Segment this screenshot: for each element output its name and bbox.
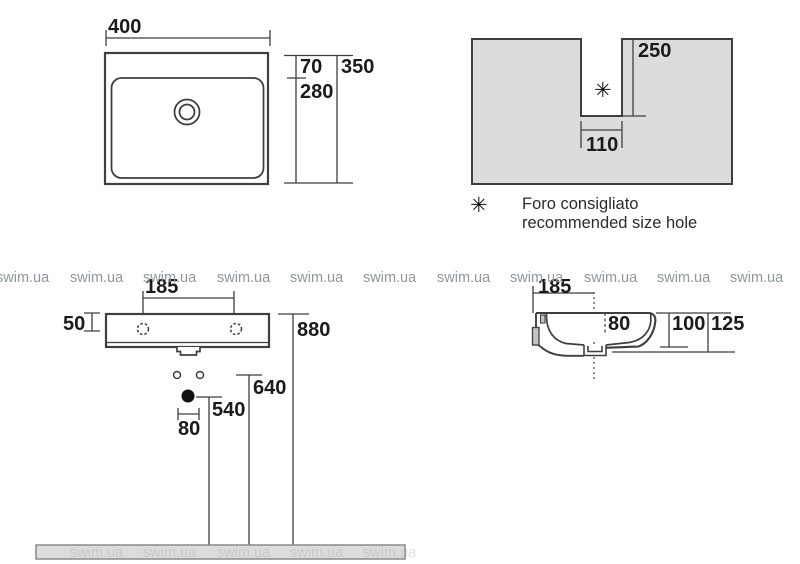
hole-marker-asterisk-icon: ✳ — [594, 80, 612, 101]
basin-outline — [105, 53, 268, 184]
label-top-rim: 70 — [300, 57, 322, 77]
watermark-text-faint: swim.ua — [217, 546, 270, 561]
technical-drawing-sheet: 400 70 350 280 250 110 ✳ ✳ Foro consigli… — [0, 0, 800, 564]
watermark-text-faint: swim.ua — [143, 546, 196, 561]
side-underside — [541, 347, 585, 356]
label-hole-height: 250 — [638, 41, 671, 61]
rim-slot — [541, 315, 546, 323]
drain-tab — [177, 347, 200, 355]
front-view-drawing — [36, 291, 405, 559]
watermark-text: swim.ua — [657, 271, 710, 286]
fixing-hole-left — [174, 372, 181, 379]
label-front-drain: 540 — [212, 400, 245, 420]
watermark-text: swim.ua — [143, 271, 196, 286]
dim-line-50 — [84, 313, 100, 331]
legend-line2: recommended size hole — [522, 214, 697, 233]
wall-shape — [472, 39, 732, 184]
label-front-rim: 50 — [63, 314, 85, 334]
label-side-total: 125 — [711, 314, 744, 334]
label-front-fixing: 640 — [253, 378, 286, 398]
label-front-drain-width: 80 — [178, 419, 200, 439]
watermark-text-faint: swim.ua — [290, 546, 343, 561]
watermark-text: swim.ua — [584, 271, 637, 286]
label-top-total: 350 — [341, 57, 374, 77]
label-hole-width: 110 — [586, 135, 618, 155]
watermark-text: swim.ua — [437, 271, 490, 286]
watermark-text-faint: swim.ua — [70, 546, 123, 561]
watermark-text: swim.ua — [730, 271, 783, 286]
top-view-drawing — [105, 30, 353, 184]
label-top-inner: 280 — [300, 82, 333, 102]
waste-outlet-dot — [182, 390, 195, 403]
watermark-text: swim.ua — [70, 271, 123, 286]
side-drain-outlet — [584, 345, 606, 356]
watermark-text: swim.ua — [217, 271, 270, 286]
watermark-text: swim.ua — [0, 271, 49, 286]
fixing-hole-right — [197, 372, 204, 379]
wall-cutout-drawing — [472, 39, 732, 184]
legend-asterisk-icon: ✳ — [470, 195, 488, 216]
watermark-text: swim.ua — [290, 271, 343, 286]
label-side-depth: 80 — [608, 314, 630, 334]
label-top-width: 400 — [108, 17, 141, 37]
wall-bracket-clip — [533, 328, 540, 346]
legend-line1: Foro consigliato — [522, 195, 638, 214]
watermark-text-faint: swim.ua — [363, 546, 416, 561]
side-profile-outline — [536, 313, 655, 348]
label-side-front: 100 — [672, 314, 705, 334]
label-front-total: 880 — [297, 320, 330, 340]
dim-line-880 — [278, 314, 309, 545]
watermark-text: swim.ua — [510, 271, 563, 286]
watermark-text: swim.ua — [363, 271, 416, 286]
